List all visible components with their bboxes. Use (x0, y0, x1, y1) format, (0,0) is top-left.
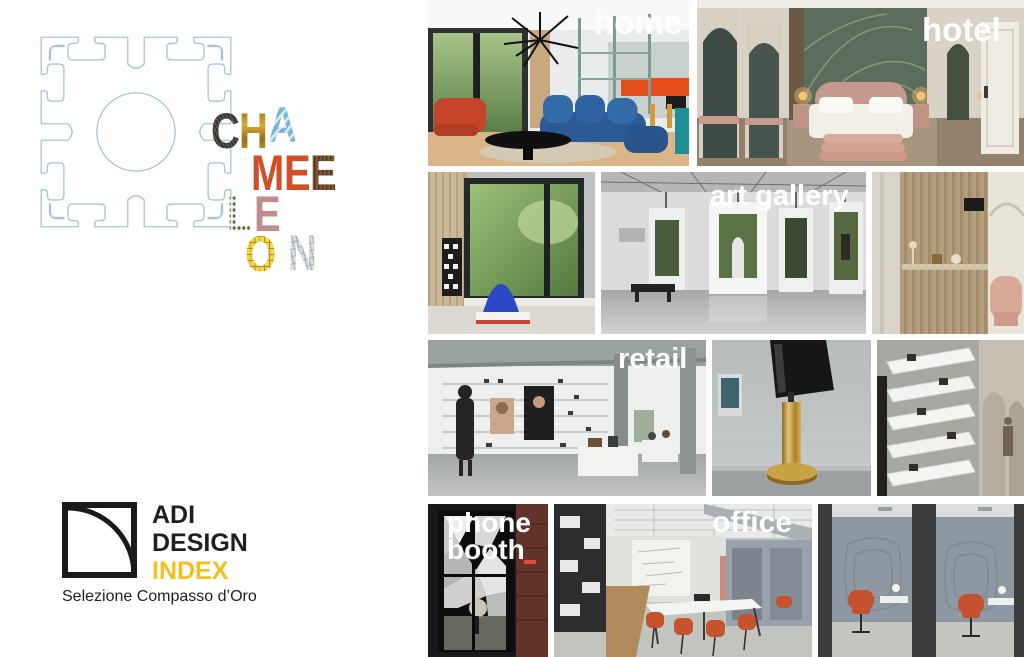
adi-line2: DESIGN (152, 531, 248, 556)
photo-window-plant-room (428, 172, 595, 334)
t-slot-profile-drawing (33, 28, 239, 236)
label-phone: phone (447, 509, 531, 537)
adi-line3: INDEX (152, 559, 228, 584)
label-retail: retail (618, 345, 687, 374)
adi-compass-square-icon (62, 502, 137, 578)
wordmark-letter: A (268, 100, 297, 150)
wordmark-letter: E (310, 148, 337, 198)
photo-brass-leg-detail (712, 340, 871, 496)
adi-tagline: Selezione Compasso d’Oro (62, 588, 257, 606)
presentation-board: C H A M E E L E O N ADI DESIGN INDEX Sel… (0, 0, 1024, 657)
wordmark-letter: N (288, 228, 317, 278)
label-office: office (712, 508, 792, 538)
photo-wood-slat-shelving (872, 172, 1024, 334)
wordmark-letter: E (284, 148, 311, 198)
wordmark-letter: C (211, 106, 240, 156)
photo-acoustic-work-booths (818, 504, 1024, 657)
adi-line1: ADI (152, 503, 195, 528)
label-booth: booth (447, 536, 525, 564)
label-hotel: hotel (922, 13, 1001, 46)
photo-angled-display-shelves (877, 340, 1024, 496)
label-home: home (594, 6, 682, 39)
wordmark-letter: O (245, 229, 276, 279)
label-art-gallery: art gallery (710, 182, 849, 211)
